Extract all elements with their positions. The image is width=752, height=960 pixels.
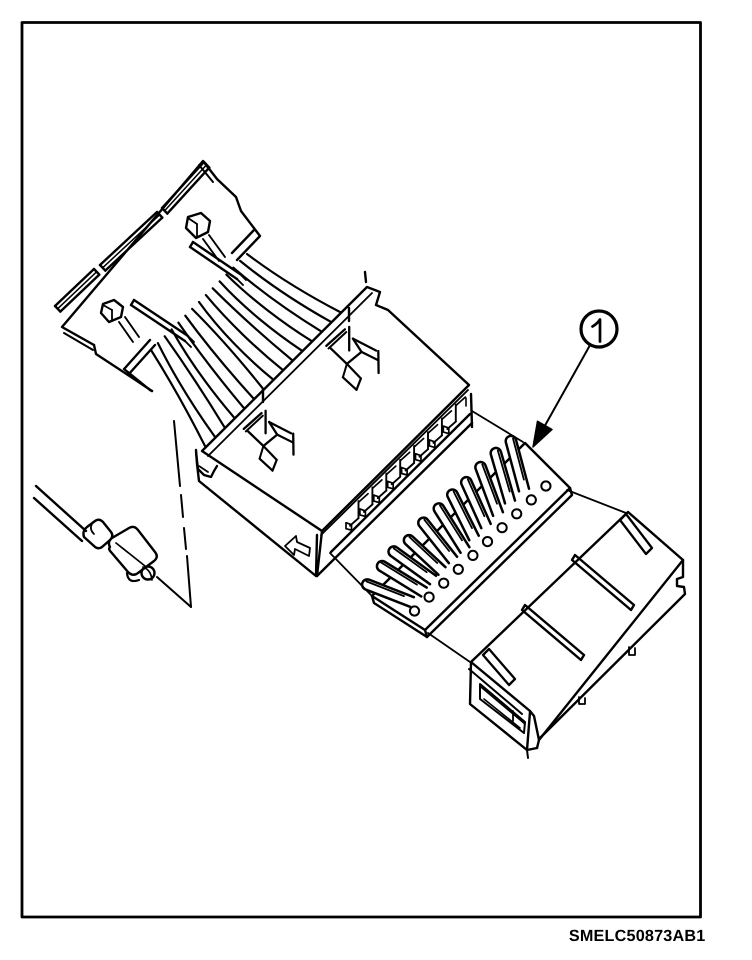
svg-text:SMELC50873AB1: SMELC50873AB1 [569,927,706,945]
